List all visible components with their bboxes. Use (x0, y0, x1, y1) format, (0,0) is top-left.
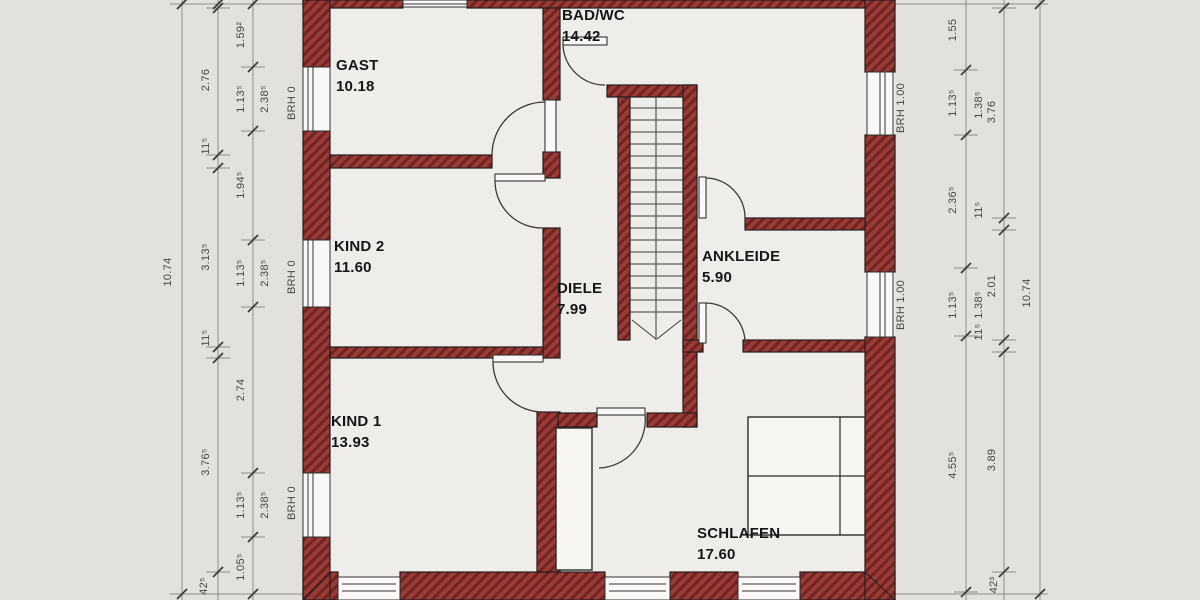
dimension-label: 10.74 (162, 257, 174, 286)
dimension-label: 3.89 (986, 449, 998, 472)
dimension-label: 2.38⁵ (259, 491, 271, 518)
dimension-label: 1.59² (235, 22, 247, 49)
room-label-kind-1: KIND 113.93 (331, 411, 381, 453)
dimension-label: 1.13⁵ (235, 491, 247, 518)
room-name: ANKLEIDE (702, 246, 780, 267)
dimension-label: BRH 0 (286, 86, 298, 120)
dimension-label: 10.74 (1021, 278, 1033, 307)
dimension-label: 11⁵ (200, 138, 212, 155)
dimension-label: 1.38⁵ (973, 291, 985, 318)
dimension-label: 1.94⁵ (235, 171, 247, 198)
dimension-label: 42³ (988, 577, 1000, 594)
dimension-label: BRH 0 (286, 260, 298, 294)
dimension-label: 2.36⁵ (947, 186, 959, 213)
dimension-label: 1.13⁵ (947, 89, 959, 116)
dimension-label: BRH 0 (286, 486, 298, 520)
dimension-label: 2.76 (200, 69, 212, 92)
floor-plan-page: GAST10.18BAD/WC14.42KIND 211.60DIELE7.99… (0, 0, 1200, 600)
dimension-label: 4.55⁵ (947, 451, 959, 478)
dimension-label: 3.76⁵ (200, 448, 212, 475)
dimension-label: 3.13⁵ (200, 243, 212, 270)
room-label-kind-2: KIND 211.60 (334, 236, 384, 278)
room-name: SCHLAFEN (697, 523, 780, 544)
wardrobe-icon (556, 428, 592, 570)
dimension-label: 1.38⁵ (973, 91, 985, 118)
room-name: KIND 1 (331, 411, 381, 432)
room-name: KIND 2 (334, 236, 384, 257)
room-area: 14.42 (562, 26, 625, 47)
room-area: 13.93 (331, 432, 381, 453)
dimension-label: BRH 1.00 (895, 280, 907, 330)
room-area: 5.90 (702, 267, 780, 288)
dimension-label: 11⁵ (973, 324, 985, 341)
dimension-label: 2.38⁵ (259, 259, 271, 286)
bed-icon (748, 417, 865, 535)
room-label-diele: DIELE7.99 (557, 278, 602, 320)
dimension-label: 1.13⁵ (235, 259, 247, 286)
dimension-label: 1.55 (947, 19, 959, 42)
room-label-gast: GAST10.18 (336, 55, 378, 97)
dimension-label: 2.01 (986, 275, 998, 298)
room-label-ankleide: ANKLEIDE5.90 (702, 246, 780, 288)
dimension-label: 2.74 (235, 379, 247, 402)
room-name: BAD/WC (562, 5, 625, 26)
room-label-schlafen: SCHLAFEN17.60 (697, 523, 780, 565)
dimension-label: 11⁵ (973, 202, 985, 219)
dimension-label: 2.38⁵ (259, 85, 271, 112)
room-area: 10.18 (336, 76, 378, 97)
dimension-label: 3.76 (986, 101, 998, 124)
dimension-label: 1.05⁵ (235, 553, 247, 580)
room-name: GAST (336, 55, 378, 76)
room-label-bad-wc: BAD/WC14.42 (562, 5, 625, 47)
room-area: 7.99 (557, 299, 602, 320)
room-area: 11.60 (334, 257, 384, 278)
room-area: 17.60 (697, 544, 780, 565)
dimension-label: 1.13⁵ (235, 85, 247, 112)
dimension-label: 11⁵ (200, 330, 212, 347)
dimension-label: 1.13⁵ (947, 291, 959, 318)
dimension-label: BRH 1.00 (895, 83, 907, 133)
room-name: DIELE (557, 278, 602, 299)
dimension-label: 42⁵ (198, 577, 210, 595)
